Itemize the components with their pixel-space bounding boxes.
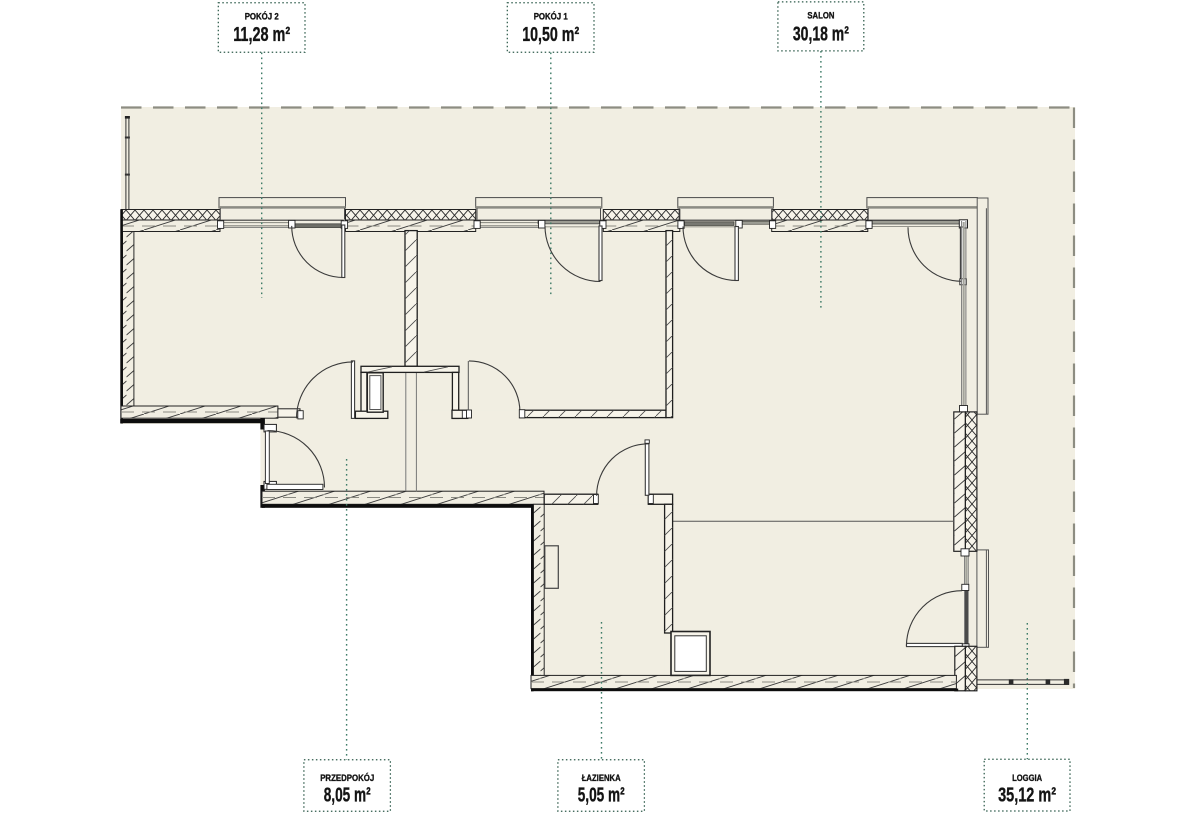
svg-text:LOGGIA: LOGGIA [1012, 773, 1042, 784]
svg-text:8,05 m²: 8,05 m² [324, 784, 371, 806]
svg-text:POKÓJ 1: POKÓJ 1 [534, 11, 569, 23]
svg-text:11,28 m²: 11,28 m² [233, 24, 290, 46]
svg-text:30,18 m²: 30,18 m² [793, 24, 849, 46]
svg-text:ŁAZIENKA: ŁAZIENKA [582, 773, 621, 784]
svg-text:POKÓJ 2: POKÓJ 2 [245, 11, 279, 23]
svg-text:35,12 m²: 35,12 m² [998, 784, 1056, 806]
svg-text:5,05 m²: 5,05 m² [578, 784, 625, 806]
svg-text:PRZEDPOKÓJ: PRZEDPOKÓJ [320, 772, 374, 784]
svg-text:10,50 m²: 10,50 m² [522, 24, 579, 46]
svg-text:SALON: SALON [807, 11, 834, 22]
